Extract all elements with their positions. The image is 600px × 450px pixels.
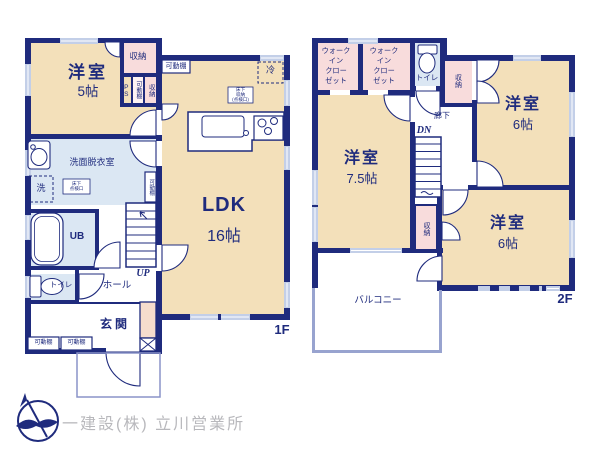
storage-label-mid-2f: 収納 (419, 214, 434, 244)
room-size-western-2f-left: 7.5帖 (328, 172, 396, 186)
room-size-western-2f-right-top: 6帖 (488, 118, 558, 132)
bathtub-icon (31, 213, 63, 265)
stairs-up-label: UP (129, 268, 157, 279)
room-size-western-2f-right-bottom: 6帖 (472, 237, 544, 251)
floor-label-1f: 1F (268, 323, 296, 337)
stairs-1f-icon (126, 203, 156, 267)
stairs-2f-icon (415, 137, 441, 197)
compass-icon (16, 393, 58, 441)
corridor-label: 廊下 (426, 112, 458, 121)
refrigerator-label: 冷 (258, 66, 283, 76)
room-size-ldk: 16帖 (175, 228, 273, 246)
pipe-space-label: PS (119, 78, 132, 103)
stairs-down-label: DN (409, 125, 439, 136)
storage-label-strip: 収納 (144, 77, 156, 103)
storage-label-top-1f: 収納 (120, 52, 156, 61)
entrance-storage-icon (140, 302, 156, 351)
room-label-unit-bath: UB (60, 231, 94, 242)
room-label-toilet-1f: トイレ (46, 281, 76, 289)
washbasin-icon (28, 141, 50, 169)
room-label-entrance: 玄関 (90, 318, 140, 331)
washer-label: 洗 (31, 184, 51, 194)
room-label-balcony: バルコニー (338, 296, 418, 306)
floor-label-2f: 2F (551, 292, 579, 306)
movable-shelf-label-genkan2: 可動棚 (61, 340, 92, 347)
room-label-western-2f-right-bottom: 洋室 (472, 215, 544, 233)
movable-shelf-label-strip: 可動棚 (132, 77, 144, 103)
room-label-western-2f-left: 洋室 (328, 150, 396, 168)
wic-label-2: ウォーク イン クロー ゼット (362, 46, 406, 86)
room-label-washroom: 洗面脱衣室 (52, 158, 132, 168)
movable-shelf-label-ldk: 可動棚 (162, 63, 190, 71)
room-label-ldk: LDK (175, 194, 273, 216)
underfloor-storage-label: 床下 収納 (点検口) (228, 88, 253, 102)
movable-shelf-label-wash: 可動棚 (144, 174, 157, 200)
floorplan-page: 洋室 5帖 収納 PS 可動棚 収納 可動棚 冷 床下 収納 (点検口) LDK… (0, 0, 600, 450)
movable-shelf-label-genkan1: 可動棚 (28, 340, 59, 347)
underfloor-hatch-label: 床下 点検口 (63, 181, 90, 191)
room-label-western-2f-right-top: 洋室 (488, 96, 558, 114)
room-label-western-1f: 洋室 (55, 64, 121, 83)
storage-label-top-2f: 収納 (450, 63, 466, 99)
company-name: 一建設(株) 立川営業所 (62, 410, 245, 434)
room-size-western-1f: 5帖 (55, 85, 121, 100)
wic-label-1: ウォーク イン クロー ゼット (314, 46, 358, 86)
room-label-hall: ホール (96, 281, 138, 291)
room-label-toilet-2f: トイレ (412, 74, 442, 82)
